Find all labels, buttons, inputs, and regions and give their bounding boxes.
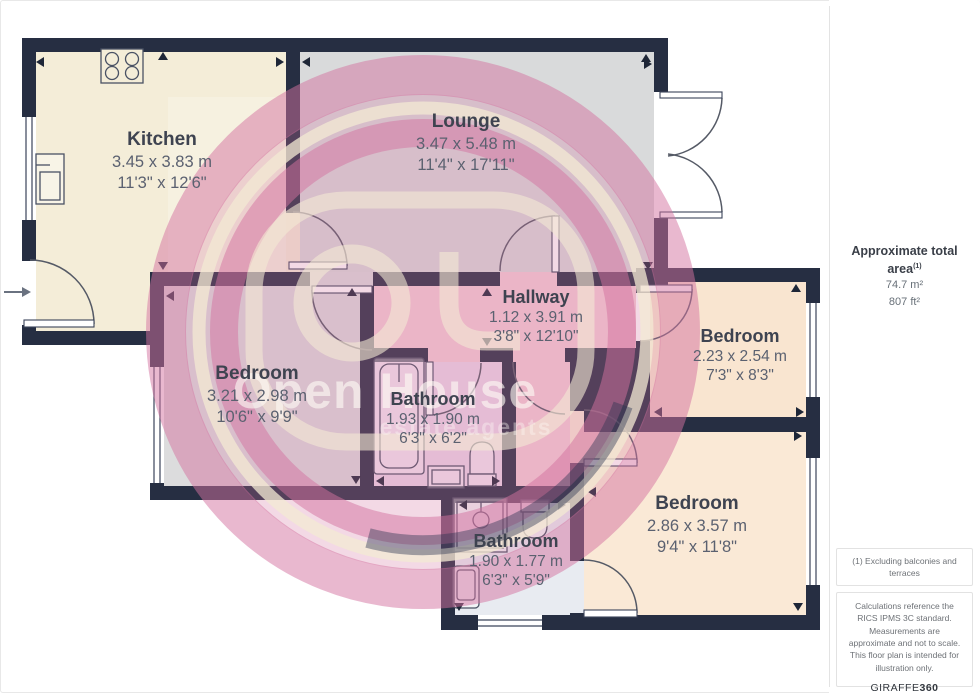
brand-name: GIRAFFE — [870, 682, 919, 693]
total-area-title-text: Approximate total area — [851, 244, 957, 276]
floorplan-canvas — [0, 0, 830, 693]
exclusions-note-text: (1) Excluding balconies and terraces — [847, 555, 962, 580]
sidebar-divider — [829, 6, 830, 687]
total-area-superscript: (1) — [913, 263, 922, 270]
giraffe360-logo: GIRAFFE360 — [845, 681, 964, 693]
floorplan-svg — [0, 0, 830, 693]
watermark-logo — [166, 75, 680, 589]
total-area-title: Approximate total area(1) — [833, 243, 976, 277]
info-sidebar: Approximate total area(1) 74.7 m² 807 ft… — [829, 0, 980, 693]
total-area-block: Approximate total area(1) 74.7 m² 807 ft… — [833, 243, 976, 311]
floorplan-page: Open House estate agents Kitchen 3.45 x … — [0, 0, 980, 693]
disclaimer-box: Calculations reference the RICS IPMS 3C … — [836, 592, 973, 687]
total-area-ft2: 807 ft² — [833, 294, 976, 311]
french-door-arc-top — [668, 98, 722, 156]
exclusions-note: (1) Excluding balconies and terraces — [836, 548, 973, 586]
total-area-m2: 74.7 m² — [833, 277, 976, 294]
french-door-arc-bottom — [668, 154, 722, 212]
brand-suffix: 360 — [919, 682, 938, 693]
disclaimer-text: Calculations reference the RICS IPMS 3C … — [845, 600, 964, 674]
